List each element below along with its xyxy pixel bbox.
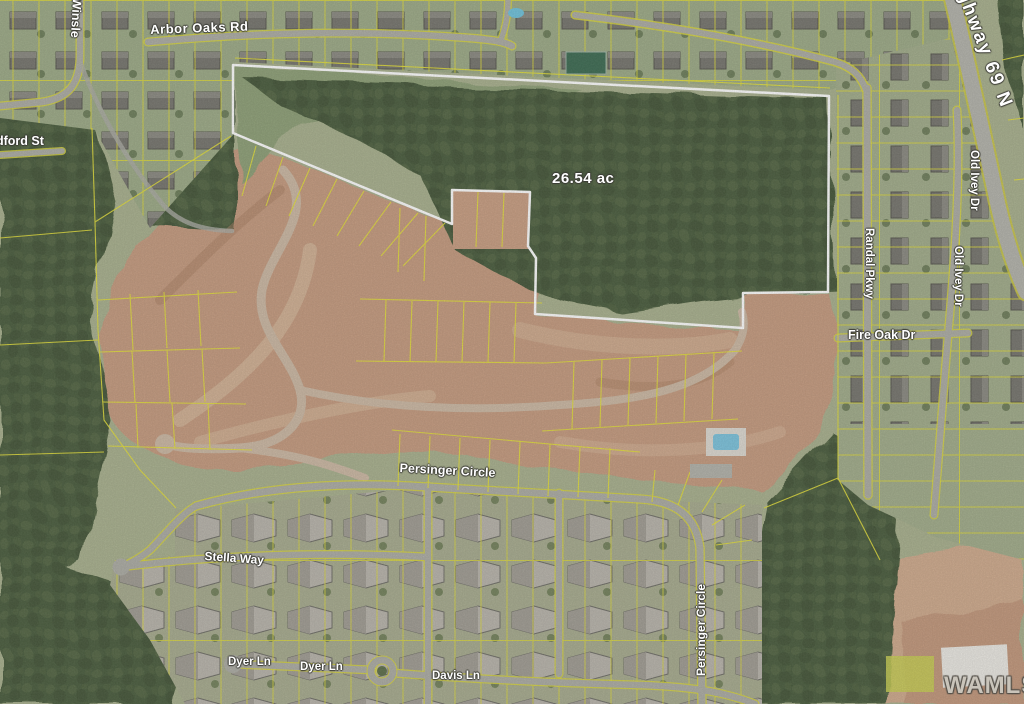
map-canvas	[0, 0, 1024, 704]
grain-light	[0, 0, 1024, 704]
aerial-map-image[interactable]: Arbor Oaks Rd Winsle dford St 26.54 ac H…	[0, 0, 1024, 704]
